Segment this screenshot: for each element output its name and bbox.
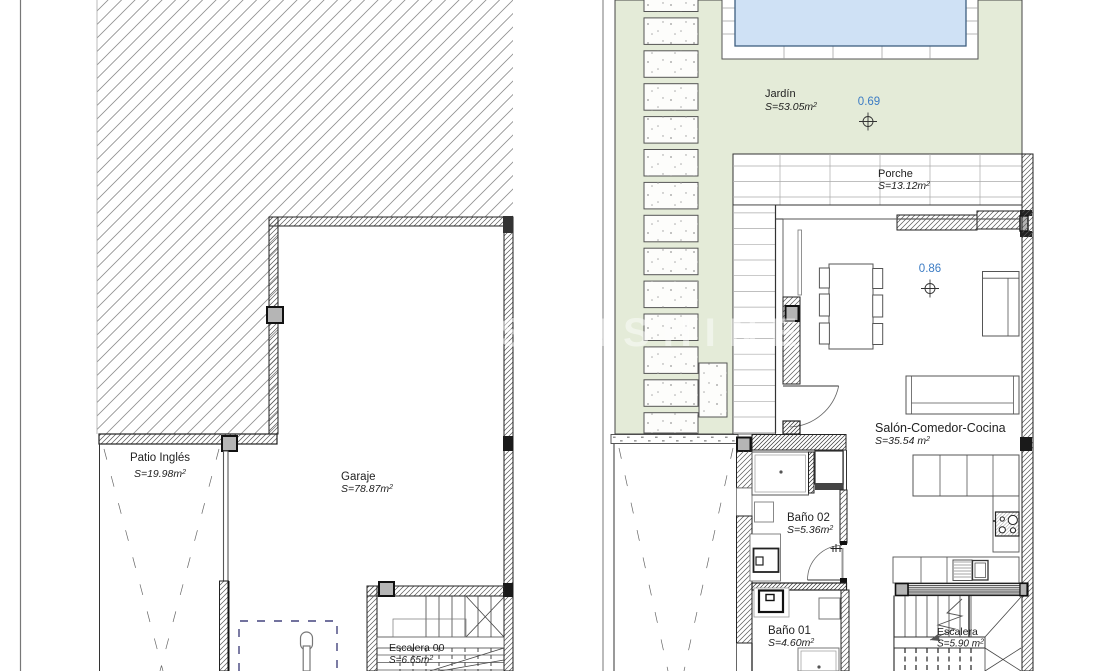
svg-text:S=6.65m2: S=6.65m2	[389, 655, 433, 666]
svg-text:Porche: Porche	[878, 168, 913, 180]
svg-text:0.69: 0.69	[858, 96, 880, 108]
svg-text:S=5.36m2: S=5.36m2	[787, 524, 833, 536]
svg-text:Escalera 00: Escalera 00	[389, 642, 445, 654]
svg-text:Jardín: Jardín	[765, 88, 796, 100]
svg-text:Garaje: Garaje	[341, 471, 376, 483]
svg-text:S=78.87m2: S=78.87m2	[341, 483, 393, 495]
svg-text:S=4.60m2: S=4.60m2	[768, 637, 814, 649]
svg-text:0.86: 0.86	[919, 263, 941, 275]
svg-text:Baño 01: Baño 01	[768, 625, 811, 637]
svg-text:Baño 02: Baño 02	[787, 512, 830, 524]
svg-text:S=19.98m2: S=19.98m2	[134, 468, 186, 480]
svg-text:SUNSHINE: SUNSHINE	[500, 311, 811, 355]
svg-text:S=35.54 m2: S=35.54 m2	[875, 435, 930, 447]
svg-text:Patio Inglés: Patio Inglés	[130, 452, 190, 464]
svg-text:S=13.12m2: S=13.12m2	[878, 180, 930, 192]
svg-text:Escalera: Escalera	[937, 626, 978, 638]
svg-text:S=53.05m2: S=53.05m2	[765, 101, 817, 113]
svg-text:Salón-Comedor-Cocina: Salón-Comedor-Cocina	[875, 421, 1006, 435]
svg-text:S=5.90 m2: S=5.90 m2	[937, 639, 984, 650]
